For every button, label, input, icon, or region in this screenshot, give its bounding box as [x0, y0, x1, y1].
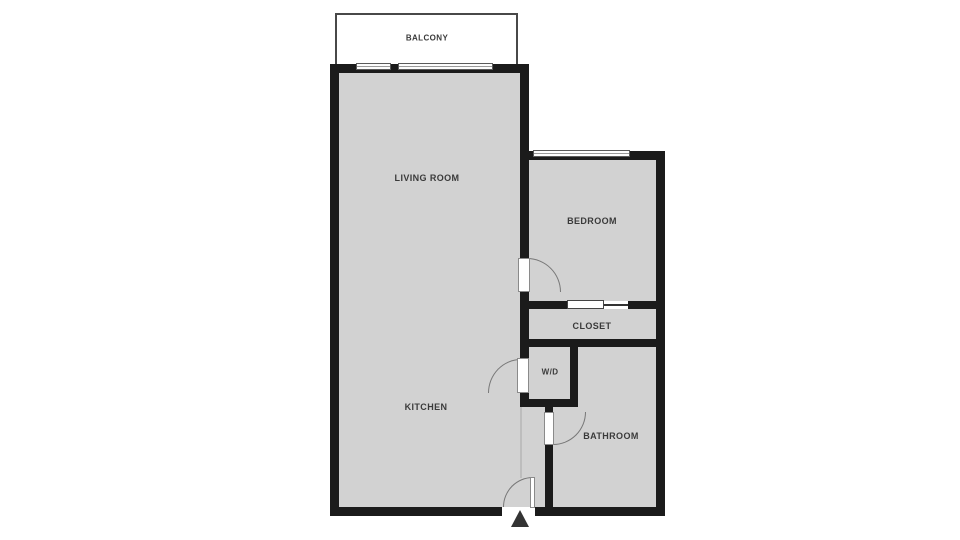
kitchen-hall-divider-line: [520, 407, 522, 478]
balcony-label: BALCONY: [406, 34, 448, 43]
door-leaf: [517, 358, 529, 393]
wall: [330, 64, 339, 516]
wall: [520, 339, 665, 347]
door-leaf: [544, 412, 554, 445]
bedroom-label: BEDROOM: [567, 216, 617, 226]
wall: [520, 64, 529, 258]
door-leaf: [530, 477, 535, 508]
room-bathroom-upper: [578, 347, 656, 407]
entrance-arrow-icon: [511, 510, 529, 527]
wall: [545, 445, 553, 516]
wall: [330, 507, 665, 516]
sliding-door-panel: [567, 300, 604, 309]
wall: [656, 151, 665, 516]
door-leaf: [518, 258, 530, 292]
sliding-door-track: [604, 304, 628, 306]
room-living-room-kitchen: [339, 73, 520, 507]
kitchen-label: KITCHEN: [405, 402, 448, 412]
wall: [570, 339, 578, 407]
floor-plan-canvas: BALCONY LIVING ROOM BEDROOM CLOS: [0, 0, 960, 540]
window: [356, 63, 391, 70]
closet-label: CLOSET: [573, 321, 612, 331]
window: [533, 150, 630, 157]
wd-label: W/D: [542, 368, 559, 377]
bathroom-label: BATHROOM: [583, 431, 639, 441]
living-room-label: LIVING ROOM: [395, 173, 460, 183]
window: [398, 63, 493, 70]
wall: [545, 399, 553, 412]
